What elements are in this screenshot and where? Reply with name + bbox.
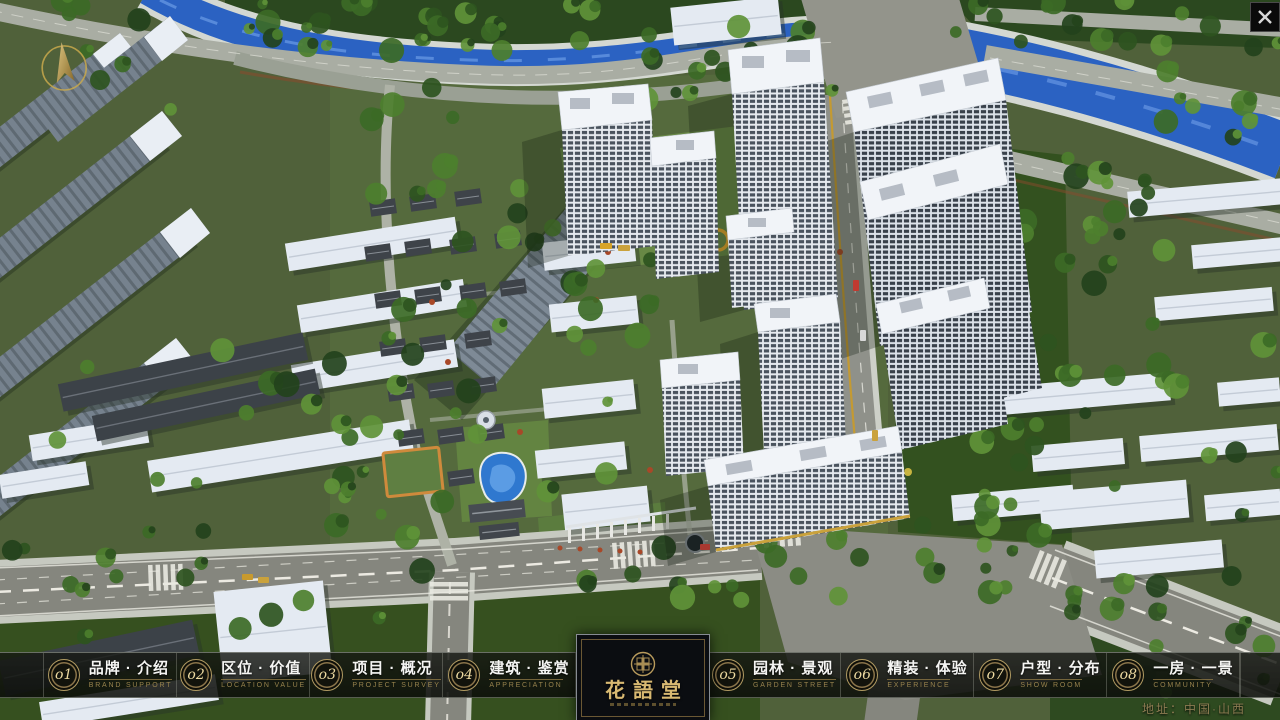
nav-label-cn: 项目 · 概况	[352, 661, 432, 677]
nav-label-en: APPRECIATION	[489, 679, 562, 689]
nav-label-cn: 精装 · 体验	[887, 661, 967, 677]
nav-number-badge: o3	[311, 659, 343, 691]
nav-label-cn: 一房 · 一景	[1153, 661, 1233, 677]
nav-item-location-value[interactable]: o2 区位 · 价值 LOCATION VALUE	[177, 653, 310, 697]
project-logo-frame: 花語堂	[581, 639, 705, 717]
nav-label-en: LOCATION VALUE	[221, 679, 306, 689]
nav-label-cn: 区位 · 价值	[221, 661, 301, 677]
project-logo-title: 花語堂	[597, 680, 689, 700]
project-logo-panel[interactable]: 花語堂	[576, 634, 710, 720]
nav-number-badge: o7	[979, 659, 1011, 691]
nav-label-cn: 建筑 · 鉴赏	[489, 661, 569, 677]
nav-number-badge: o1	[48, 659, 80, 691]
nav-label-en: GARDEN STREET	[753, 679, 836, 689]
nav-label-en: BRAND SUPPORT	[89, 679, 173, 689]
nav-spacer	[0, 653, 44, 697]
nav-item-architecture[interactable]: o4 建筑 · 鉴赏 APPRECIATION	[443, 653, 576, 697]
close-button[interactable]	[1250, 2, 1280, 32]
project-logo-subtitle-mark	[610, 703, 676, 706]
aerial-site-render	[0, 0, 1280, 720]
close-icon	[1258, 10, 1272, 24]
nav-label-en: SHOW ROOM	[1020, 679, 1082, 689]
compass-icon	[36, 36, 92, 96]
nav-item-interior-experience[interactable]: o6 精装 · 体验 EXPERIENCE	[841, 653, 974, 697]
nav-number-badge: o5	[712, 659, 744, 691]
nav-item-one-room-one-view[interactable]: o8 一房 · 一景 COMMUNITY	[1107, 653, 1240, 697]
nav-number-badge: o6	[846, 659, 878, 691]
nav-label-en: COMMUNITY	[1153, 679, 1212, 689]
nav-item-project-overview[interactable]: o3 项目 · 概况 PROJECT SURVEY	[310, 653, 443, 697]
nav-spacer	[1240, 653, 1280, 697]
nav-item-garden-landscape[interactable]: o5 园林 · 景观 GARDEN STREET	[708, 653, 841, 697]
nav-number-badge: o4	[448, 659, 480, 691]
nav-number-badge: o2	[180, 659, 212, 691]
nav-label-cn: 园林 · 景观	[753, 661, 833, 677]
nav-label-cn: 户型 · 分布	[1020, 661, 1100, 677]
logo-seal-icon	[630, 651, 656, 677]
nav-label-en: EXPERIENCE	[887, 679, 950, 689]
nav-label-cn: 品牌 · 介绍	[89, 661, 169, 677]
nav-item-brand-intro[interactable]: o1 品牌 · 介绍 BRAND SUPPORT	[44, 653, 177, 697]
project-address: 地址：中国·山西	[1142, 700, 1246, 717]
nav-number-badge: o8	[1112, 659, 1144, 691]
nav-item-floorplan-distribution[interactable]: o7 户型 · 分布 SHOW ROOM	[974, 653, 1107, 697]
nav-label-en: PROJECT SURVEY	[352, 679, 440, 689]
app-window: o1 品牌 · 介绍 BRAND SUPPORT o2 区位 · 价值 LOCA…	[0, 0, 1280, 720]
